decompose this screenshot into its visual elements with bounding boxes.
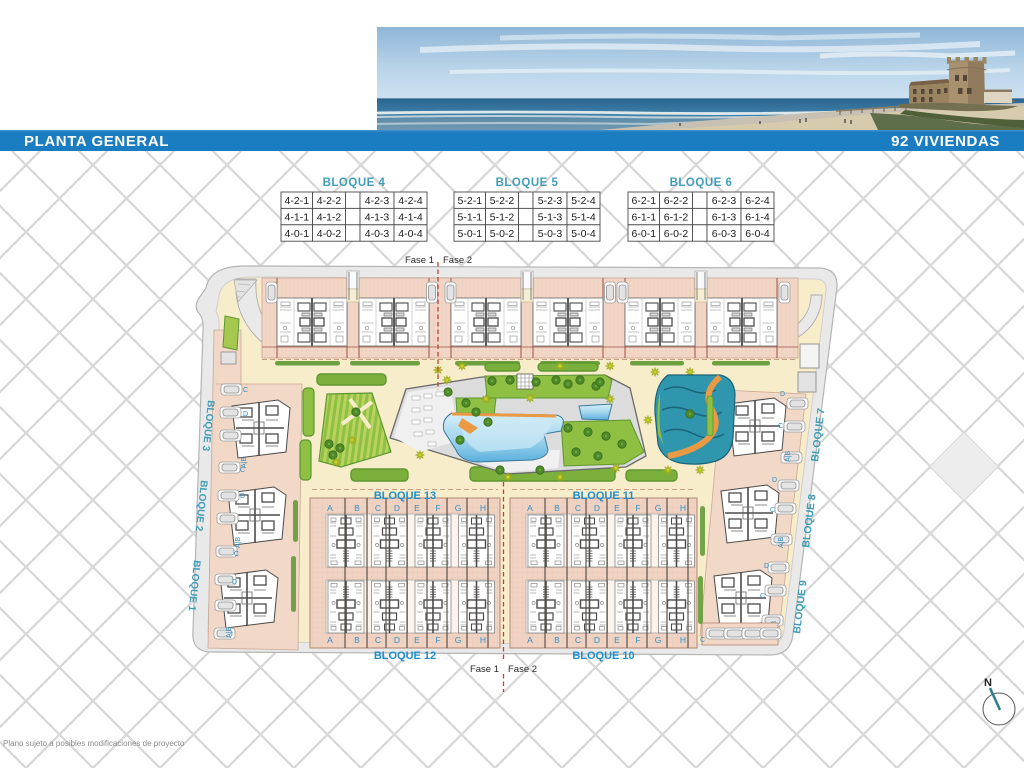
svg-text:5-1-1: 5-1-1 <box>458 211 483 223</box>
svg-text:4-2-2: 4-2-2 <box>317 195 342 207</box>
svg-text:A: A <box>327 503 333 513</box>
svg-text:A|B: A|B <box>235 537 242 548</box>
svg-text:A|B: A|B <box>778 537 785 548</box>
svg-text:D: D <box>232 579 237 586</box>
svg-text:5-0-3: 5-0-3 <box>538 228 563 240</box>
svg-text:B: B <box>354 503 360 513</box>
svg-text:4-1-2: 4-1-2 <box>317 211 342 223</box>
svg-text:6-1-3: 6-1-3 <box>712 211 737 223</box>
svg-text:5-1-2: 5-1-2 <box>490 211 515 223</box>
svg-text:Fase 1: Fase 1 <box>470 664 499 675</box>
svg-text:H: H <box>480 503 486 513</box>
svg-text:N: N <box>984 677 992 689</box>
svg-text:D: D <box>243 411 248 418</box>
svg-text:4-2-3: 4-2-3 <box>365 195 390 207</box>
svg-text:PLANTA GENERAL: PLANTA GENERAL <box>24 133 169 150</box>
svg-text:4-0-2: 4-0-2 <box>317 228 342 240</box>
svg-text:D: D <box>764 563 769 570</box>
svg-text:4-0-1: 4-0-1 <box>285 228 310 240</box>
svg-text:6-2-2: 6-2-2 <box>664 195 689 207</box>
svg-text:C: C <box>234 551 239 558</box>
svg-text:Fase 2: Fase 2 <box>443 255 472 266</box>
svg-text:F: F <box>635 503 640 513</box>
svg-text:D: D <box>772 477 777 484</box>
svg-text:BLOQUE 10: BLOQUE 10 <box>572 650 634 662</box>
svg-text:F: F <box>635 635 640 645</box>
svg-text:C: C <box>375 635 381 645</box>
svg-text:H: H <box>680 503 686 513</box>
svg-text:6-1-4: 6-1-4 <box>745 211 770 223</box>
svg-text:A: A <box>527 635 533 645</box>
svg-text:4-0-4: 4-0-4 <box>398 228 423 240</box>
svg-text:5-0-4: 5-0-4 <box>571 228 596 240</box>
svg-text:Fase 1: Fase 1 <box>405 255 434 266</box>
svg-text:E: E <box>614 503 620 513</box>
svg-text:4-0-3: 4-0-3 <box>365 228 390 240</box>
svg-text:C: C <box>575 503 581 513</box>
svg-text:C: C <box>760 593 765 600</box>
svg-text:5-1-3: 5-1-3 <box>538 211 563 223</box>
svg-text:5-2-1: 5-2-1 <box>458 195 483 207</box>
svg-text:C: C <box>700 637 705 644</box>
svg-text:D: D <box>394 503 400 513</box>
svg-text:D: D <box>394 635 400 645</box>
svg-text:4-1-3: 4-1-3 <box>365 211 390 223</box>
svg-text:6-1-2: 6-1-2 <box>664 211 689 223</box>
svg-text:F: F <box>435 503 440 513</box>
svg-text:6-0-4: 6-0-4 <box>745 228 770 240</box>
svg-text:A|B: A|B <box>785 451 792 462</box>
svg-text:E: E <box>614 635 620 645</box>
svg-text:C: C <box>778 423 783 430</box>
svg-text:4-2-4: 4-2-4 <box>398 195 423 207</box>
svg-text:C: C <box>243 387 248 394</box>
svg-text:4-1-4: 4-1-4 <box>398 211 423 223</box>
svg-text:B: B <box>554 503 560 513</box>
svg-text:A|B: A|B <box>241 457 248 468</box>
svg-text:6-2-4: 6-2-4 <box>745 195 770 207</box>
svg-text:5-2-3: 5-2-3 <box>538 195 563 207</box>
svg-text:BLOQUE 6: BLOQUE 6 <box>670 177 733 189</box>
svg-text:B: B <box>354 635 360 645</box>
svg-text:G: G <box>655 503 662 513</box>
svg-text:5-0-1: 5-0-1 <box>458 228 483 240</box>
svg-text:BLOQUE 5: BLOQUE 5 <box>496 177 559 189</box>
svg-text:C: C <box>770 507 775 514</box>
svg-text:5-2-2: 5-2-2 <box>490 195 515 207</box>
svg-text:F: F <box>435 635 440 645</box>
svg-text:BLOQUE 13: BLOQUE 13 <box>374 490 436 502</box>
svg-text:A: A <box>527 503 533 513</box>
svg-text:D: D <box>594 635 600 645</box>
svg-text:G: G <box>455 635 462 645</box>
svg-text:Fase 2: Fase 2 <box>508 664 537 675</box>
svg-text:4-1-1: 4-1-1 <box>285 211 310 223</box>
svg-text:6-0-1: 6-0-1 <box>632 228 657 240</box>
svg-text:E: E <box>414 635 420 645</box>
svg-text:92 VIVIENDAS: 92 VIVIENDAS <box>891 133 1000 150</box>
svg-text:5-2-4: 5-2-4 <box>571 195 596 207</box>
svg-text:BLOQUE 11: BLOQUE 11 <box>573 490 635 502</box>
svg-text:BLOQUE 12: BLOQUE 12 <box>374 650 436 662</box>
svg-text:5-0-2: 5-0-2 <box>490 228 515 240</box>
svg-text:G: G <box>455 503 462 513</box>
svg-text:BLOQUE 4: BLOQUE 4 <box>323 177 386 189</box>
svg-text:D: D <box>780 391 785 398</box>
svg-text:C: C <box>575 635 581 645</box>
svg-text:6-1-1: 6-1-1 <box>632 211 657 223</box>
svg-text:4-2-1: 4-2-1 <box>285 195 310 207</box>
svg-text:Plano sujeto a posibles modifi: Plano sujeto a posibles modificaciones d… <box>3 739 185 748</box>
svg-text:C: C <box>375 503 381 513</box>
svg-text:A|B: A|B <box>226 627 233 638</box>
svg-text:H: H <box>480 635 486 645</box>
svg-text:D: D <box>240 493 245 500</box>
svg-text:D: D <box>594 503 600 513</box>
svg-text:5-1-4: 5-1-4 <box>571 211 596 223</box>
svg-text:6-2-1: 6-2-1 <box>632 195 657 207</box>
svg-text:6-0-3: 6-0-3 <box>712 228 737 240</box>
svg-text:6-0-2: 6-0-2 <box>664 228 689 240</box>
svg-text:A: A <box>327 635 333 645</box>
svg-text:G: G <box>655 635 662 645</box>
svg-text:H: H <box>680 635 686 645</box>
svg-text:6-2-3: 6-2-3 <box>712 195 737 207</box>
svg-text:B: B <box>554 635 560 645</box>
svg-text:E: E <box>414 503 420 513</box>
